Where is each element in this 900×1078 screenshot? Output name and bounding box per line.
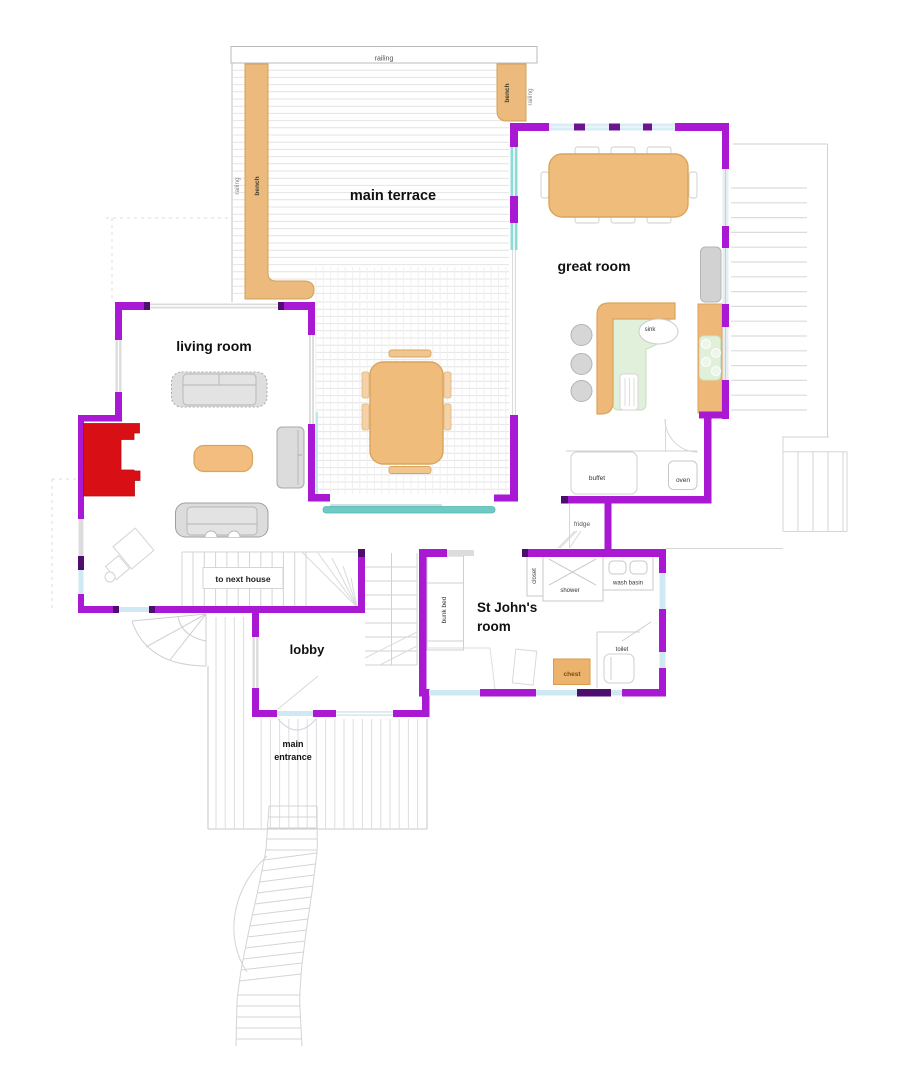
svg-text:fridge: fridge bbox=[574, 521, 591, 528]
svg-text:St John's: St John's bbox=[477, 600, 537, 615]
svg-text:main: main bbox=[282, 739, 303, 749]
svg-text:railing: railing bbox=[527, 88, 534, 106]
svg-text:bench: bench bbox=[254, 176, 261, 195]
svg-text:railing: railing bbox=[375, 56, 394, 63]
svg-text:oven: oven bbox=[676, 477, 690, 484]
svg-text:toilet: toilet bbox=[616, 647, 629, 653]
svg-text:living room: living room bbox=[176, 338, 251, 354]
svg-text:lobby: lobby bbox=[290, 642, 325, 657]
svg-text:closet: closet bbox=[532, 568, 538, 584]
svg-text:main terrace: main terrace bbox=[350, 188, 436, 204]
svg-text:to next house: to next house bbox=[215, 574, 271, 584]
svg-text:shower: shower bbox=[560, 588, 579, 594]
svg-text:entrance: entrance bbox=[274, 752, 312, 762]
svg-text:buffet: buffet bbox=[589, 475, 605, 482]
svg-text:chest: chest bbox=[564, 671, 582, 678]
svg-text:great room: great room bbox=[557, 258, 630, 274]
svg-text:bunk bed: bunk bed bbox=[441, 596, 448, 623]
svg-text:room: room bbox=[477, 619, 511, 634]
svg-text:wash basin: wash basin bbox=[612, 581, 643, 587]
svg-text:sink: sink bbox=[645, 327, 657, 333]
svg-text:bench: bench bbox=[504, 83, 511, 102]
svg-text:railing: railing bbox=[234, 177, 241, 195]
